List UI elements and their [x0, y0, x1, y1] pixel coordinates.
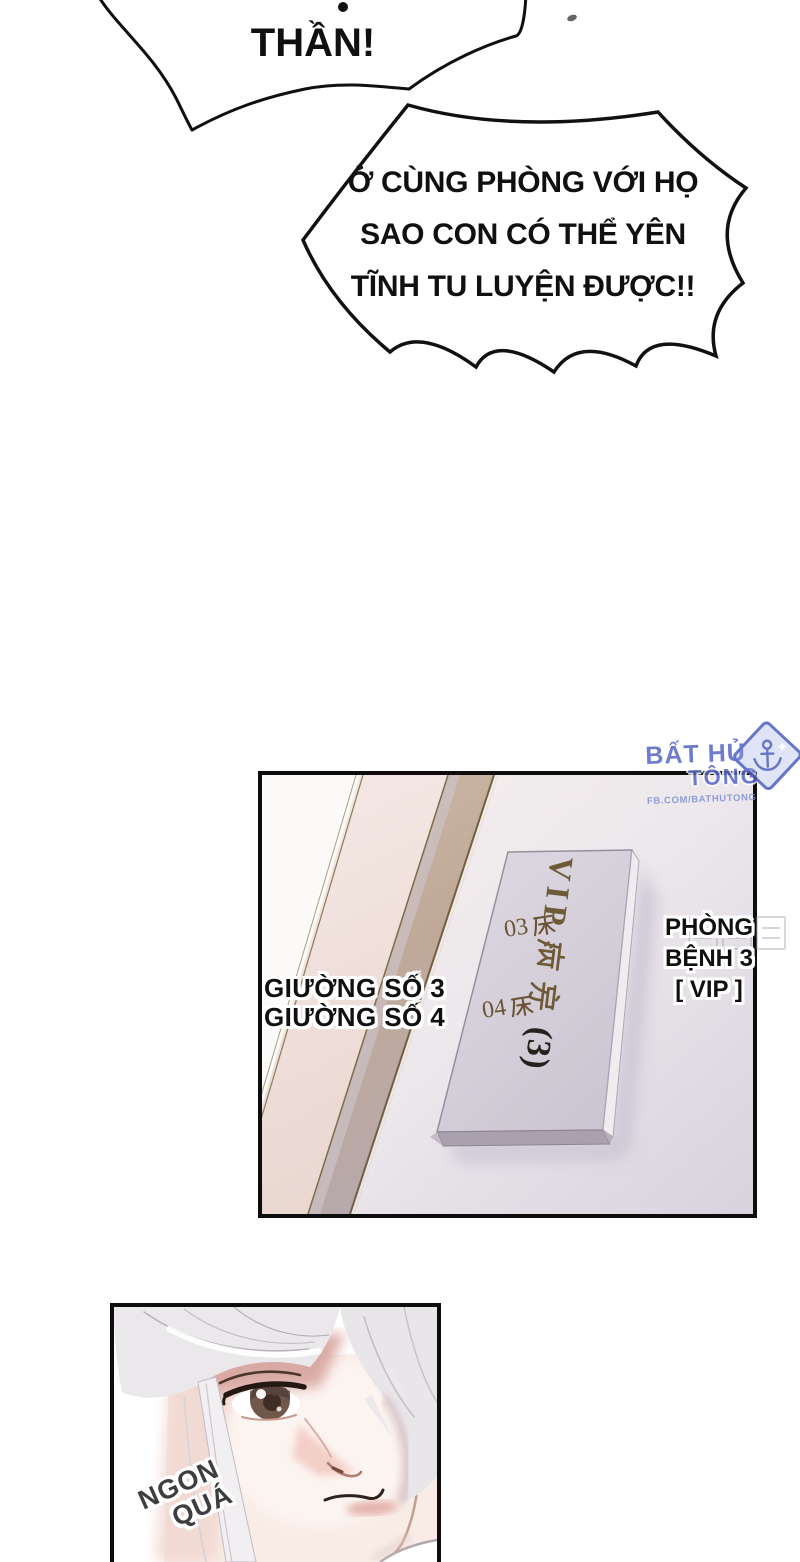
- watermark-glyph: [756, 916, 786, 950]
- burst-line-3: TĨNH TU LUYỆN ĐƯỢC!!: [305, 261, 741, 313]
- burst-line-1: Ở CÙNG PHÒNG VỚI HỌ: [305, 157, 741, 209]
- page-speck: [566, 13, 577, 22]
- shout-bubble-text: THẦN!: [248, 20, 378, 66]
- caption-room: PHÒNG BỆNH 3 [ VIP ]: [658, 912, 760, 1005]
- caption-room-line3: [ VIP ]: [658, 974, 760, 1005]
- caption-beds: GIƯỜNG SỐ 3 GIƯỜNG SỐ 4: [264, 974, 445, 1032]
- bed-number-03: 03: [502, 913, 530, 943]
- bed-number-04: 04: [480, 994, 508, 1024]
- comic-page: THẦN! Ở CÙNG PHÒNG VỚI HỌ SAO CON CÓ THỂ…: [0, 0, 800, 1562]
- burst-bubble-text: Ở CÙNG PHÒNG VỚI HỌ SAO CON CÓ THỂ YÊN T…: [305, 157, 741, 313]
- sign-room-number: (3): [516, 1017, 560, 1072]
- caption-room-line1: PHÒNG: [658, 912, 760, 943]
- han-bing-icon: [530, 936, 568, 974]
- shout-bubble-dot: [338, 2, 348, 12]
- han-chuang-icon: [507, 991, 536, 1020]
- caption-bed-3: GIƯỜNG SỐ 3: [264, 974, 445, 1003]
- caption-bed-4: GIƯỜNG SỐ 4: [264, 1003, 445, 1032]
- han-chuang-icon: [529, 910, 558, 939]
- caption-room-line2: BỆNH 3: [658, 943, 760, 974]
- burst-line-2: SAO CON CÓ THỂ YÊN: [305, 209, 741, 261]
- translator-watermark: BẤT HỦ TÔNG FB.COM/BATHUTONG: [645, 738, 761, 807]
